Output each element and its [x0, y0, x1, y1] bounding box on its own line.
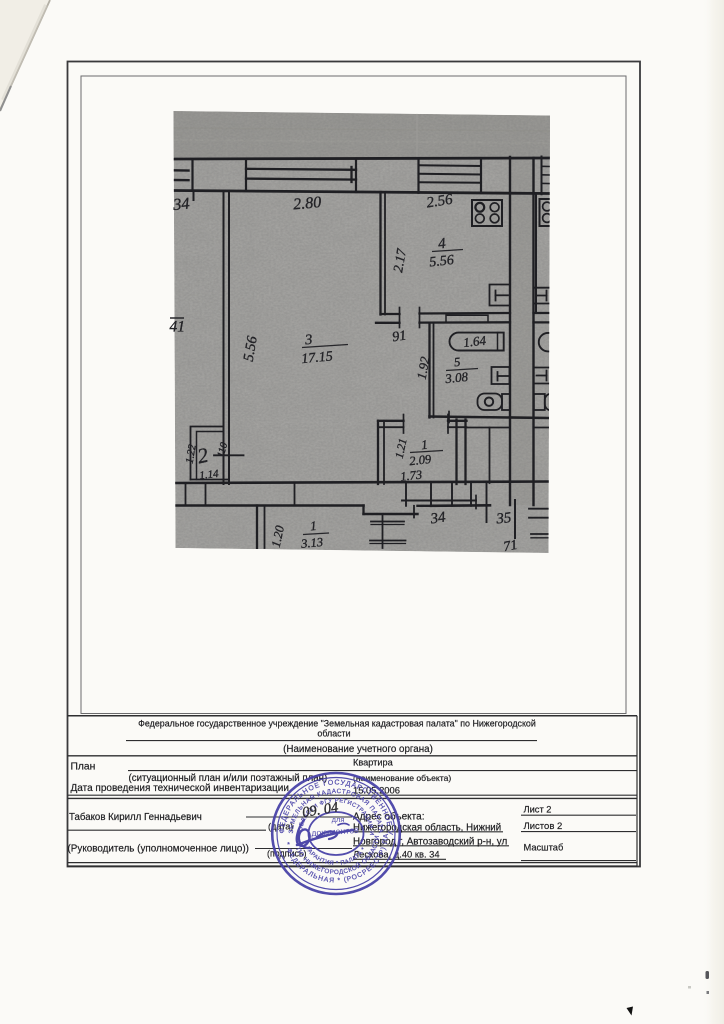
svg-text:5.56: 5.56 [429, 253, 455, 270]
svg-text:1.73: 1.73 [400, 468, 423, 484]
svg-text:1.14: 1.14 [199, 468, 220, 482]
svg-text:1.64: 1.64 [462, 333, 487, 350]
svg-text:3.13: 3.13 [300, 535, 324, 551]
svg-text:91: 91 [391, 328, 407, 345]
svg-text:41: 41 [170, 319, 186, 336]
svg-text:Масштаб: Масштаб [524, 843, 564, 853]
svg-text:17.15: 17.15 [301, 349, 334, 367]
svg-text:Табаков Кирилл Геннадьевич: Табаков Кирилл Геннадьевич [69, 812, 202, 823]
svg-text:34: 34 [429, 509, 448, 527]
svg-text:3.08: 3.08 [444, 369, 470, 386]
svg-text:71: 71 [502, 538, 518, 555]
svg-text:области: области [317, 729, 350, 739]
svg-text:2.80: 2.80 [293, 194, 322, 213]
svg-text:Листов 2: Листов 2 [524, 821, 563, 832]
svg-text:(Руководитель (уполномоченное: (Руководитель (уполномоченное лицо)) [68, 844, 249, 855]
svg-text:2.09: 2.09 [409, 452, 433, 468]
svg-text:Федеральное государственное уч: Федеральное государственное учреждение "… [138, 719, 536, 729]
svg-text:(Наименование учетного органа): (Наименование учетного органа) [283, 744, 433, 755]
svg-text:Лист 2: Лист 2 [524, 804, 552, 814]
svg-text:35: 35 [495, 510, 513, 528]
svg-text:Нижегородская область, Нижний: Нижегородская область, Нижний [353, 823, 501, 834]
svg-text:План: План [71, 761, 96, 772]
svg-text:1: 1 [309, 518, 317, 534]
svg-text:Дата проведения технической ин: Дата проведения технической инвентаризац… [71, 783, 289, 794]
svg-text:Квартира: Квартира [353, 757, 394, 767]
svg-text:34: 34 [171, 194, 190, 214]
svg-text:для: для [332, 815, 345, 824]
svg-text:3: 3 [303, 332, 313, 349]
